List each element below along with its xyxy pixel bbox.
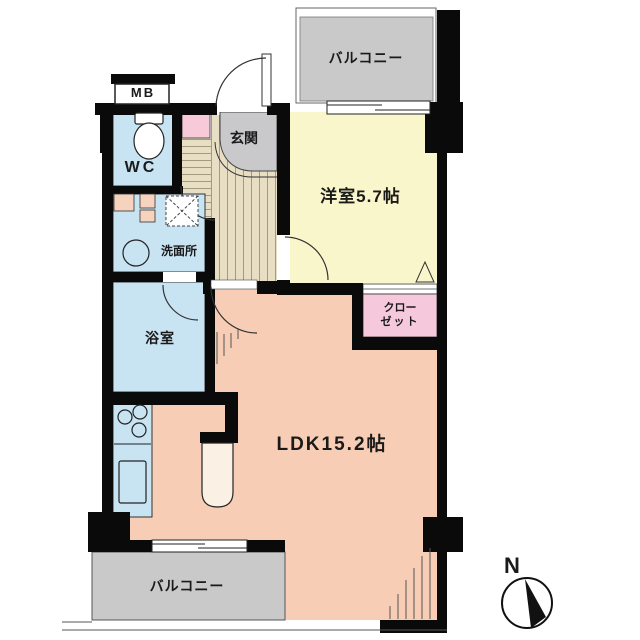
wall-segment <box>247 540 285 552</box>
wall-segment <box>130 540 152 552</box>
compass-icon <box>502 578 552 628</box>
entrance-door-leaf <box>262 54 271 106</box>
wall-segment <box>113 186 183 194</box>
toilet-bowl-icon <box>134 123 164 159</box>
wall-segment <box>102 392 238 405</box>
window <box>327 101 430 114</box>
wall-segment <box>225 405 238 433</box>
wall-segment <box>380 620 447 633</box>
storage-box <box>114 194 134 211</box>
wall-segment <box>102 153 113 518</box>
washing-machine-icon <box>166 196 198 226</box>
wall-segment <box>113 272 163 282</box>
shoe-cabinet <box>182 112 210 138</box>
storage-box <box>140 210 155 222</box>
wall-segment <box>437 10 460 103</box>
entrance-door-gap <box>217 103 267 112</box>
balcony-top-floor <box>300 17 433 101</box>
western-room-floor <box>290 112 437 283</box>
floor-plan: バルコニー MB 玄関 WC 洋室5.7帖 洗面所 クロー ゼット 浴室 LDK… <box>0 0 640 640</box>
wall-segment <box>352 337 447 350</box>
balcony-bottom-floor <box>92 552 285 620</box>
toilet-tank-icon <box>135 113 163 124</box>
storage-box <box>140 194 155 208</box>
western-room-door-gap <box>277 235 290 280</box>
pillar <box>423 517 463 552</box>
closet-floor <box>363 294 437 337</box>
bathroom-door-gap <box>163 272 196 282</box>
entrance-floor <box>220 112 277 171</box>
ldk-floor <box>130 517 155 540</box>
wall-segment <box>203 281 211 294</box>
floor-plan-drawing <box>0 0 640 640</box>
wall-segment <box>172 104 182 192</box>
wall-segment <box>111 74 175 84</box>
pillar <box>425 102 463 153</box>
window <box>152 540 247 552</box>
wall-segment <box>88 512 130 552</box>
ldk-opening <box>211 280 257 289</box>
ldk-floor <box>152 400 203 540</box>
wall-segment <box>200 432 238 443</box>
wall-segment <box>257 281 277 294</box>
bathroom-floor <box>113 282 205 392</box>
meter-box <box>115 84 169 104</box>
wall-segment <box>205 218 215 395</box>
door-arc-entrance <box>216 58 266 106</box>
wall-segment <box>277 283 363 295</box>
wall-segment <box>100 103 113 153</box>
kitchen-counter <box>202 443 233 507</box>
